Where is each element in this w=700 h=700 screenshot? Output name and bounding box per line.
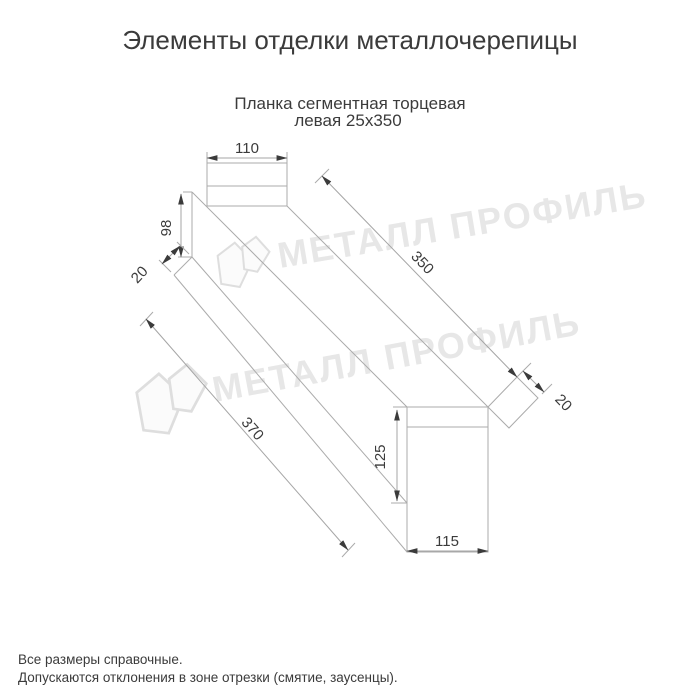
metall-profil-logo-icon: [212, 234, 277, 291]
strip-hem-bottom-edge: [174, 275, 407, 552]
dim-20-far-extension-line: [542, 384, 552, 394]
watermark-text: МЕТАЛЛ ПРОФИЛЬ: [209, 301, 584, 409]
near-end-tab: [207, 163, 287, 206]
dim-370-label: 370: [238, 414, 267, 444]
dim-115-label: 115: [435, 533, 459, 550]
part-subtitle-line2: левая 25х350: [294, 111, 401, 130]
dim-20-near-line: [162, 246, 180, 264]
dim-110-label: 110: [235, 140, 259, 157]
dim-20-far-label: 20: [551, 391, 575, 415]
dim-20-near-label: 20: [128, 263, 152, 287]
watermark-logo-upper: МЕТАЛЛ ПРОФИЛЬ: [211, 171, 651, 292]
drawing-page: МЕТАЛЛ ПРОФИЛЬ МЕТАЛЛ ПРОФИЛЬ Элементы о…: [0, 0, 700, 700]
metall-profil-logo-icon: [128, 361, 217, 441]
dim-98-label: 98: [158, 220, 175, 237]
far-hem-flap: [488, 377, 538, 428]
watermark-text: МЕТАЛЛ ПРОФИЛЬ: [275, 174, 650, 276]
dim-125-extension-lines: [391, 407, 407, 503]
footer-note-line2: Допускаются отклонения в зоне отрезки (с…: [18, 670, 398, 685]
far-end-tab: [407, 407, 488, 552]
footer-note-line1: Все размеры справочные.: [18, 652, 183, 667]
page-title: Элементы отделки металлочерепицы: [122, 25, 577, 55]
technical-drawing-canvas: МЕТАЛЛ ПРОФИЛЬ МЕТАЛЛ ПРОФИЛЬ Элементы о…: [0, 0, 700, 700]
dim-125-label: 125: [372, 444, 389, 469]
dim-20-far-line: [523, 371, 544, 392]
near-hem-edge: [174, 257, 192, 275]
